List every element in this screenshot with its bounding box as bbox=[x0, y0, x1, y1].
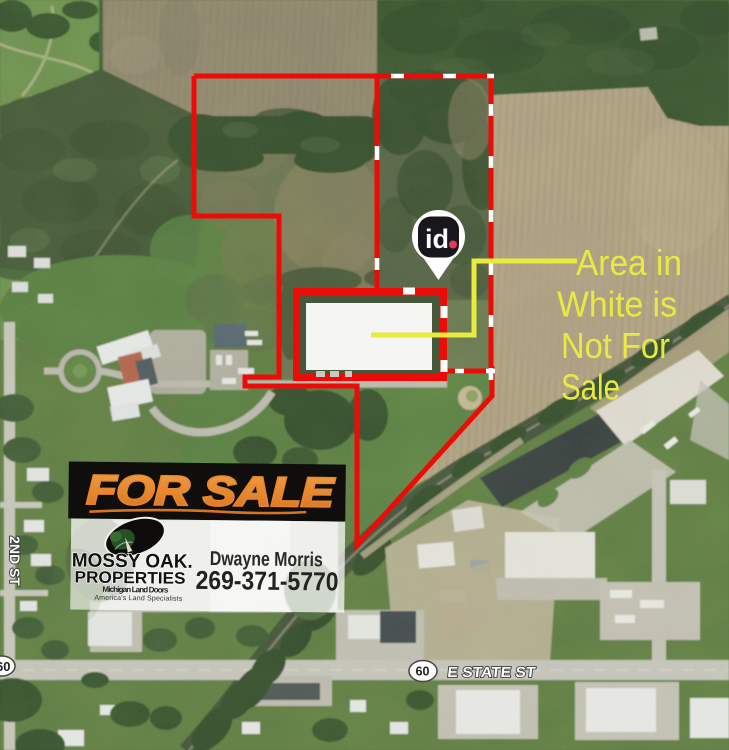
svg-text:White is: White is bbox=[557, 284, 677, 325]
svg-text:Sale: Sale bbox=[561, 367, 620, 408]
svg-text:Area in: Area in bbox=[576, 242, 682, 283]
svg-text:Not For: Not For bbox=[561, 325, 670, 366]
svg-text:E STATE ST: E STATE ST bbox=[447, 665, 537, 681]
svg-text:Michigan Land Doors: Michigan Land Doors bbox=[102, 585, 169, 595]
svg-text:60: 60 bbox=[416, 665, 430, 679]
svg-text:America's Land Specialists: America's Land Specialists bbox=[94, 595, 183, 603]
svg-text:id: id bbox=[425, 224, 449, 254]
svg-text:2ND ST: 2ND ST bbox=[7, 536, 23, 586]
svg-text:FOR SALE: FOR SALE bbox=[86, 467, 335, 516]
svg-text:60: 60 bbox=[0, 659, 10, 674]
svg-text:269-371-5770: 269-371-5770 bbox=[195, 565, 338, 597]
